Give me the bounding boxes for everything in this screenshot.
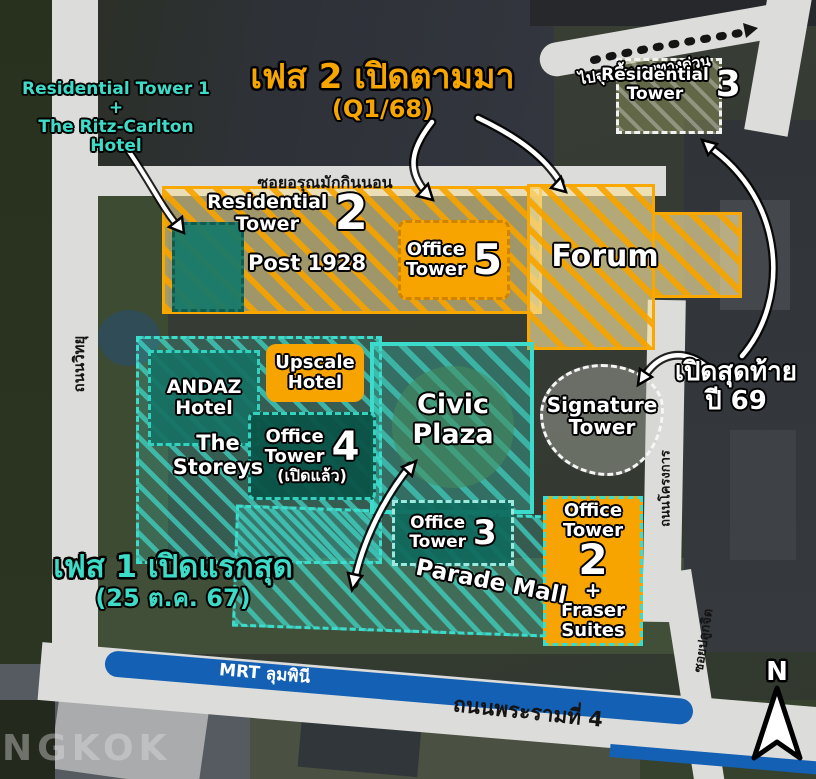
zone-forum-arm <box>652 212 742 298</box>
office2-label-2: Tower <box>563 521 623 541</box>
res3-label: Residential Tower 3 <box>616 66 726 104</box>
phase1-title: เฟส 1 เปิดแรกสุด <box>8 550 338 585</box>
phase2-heading: เฟส 2 เปิดตามมา (Q1/68) <box>230 58 535 123</box>
office3-label-2: Tower <box>409 533 466 552</box>
civic-label-1: Civic <box>388 390 518 420</box>
res1-note-line1: Residential Tower 1 <box>6 80 226 99</box>
upscale-hotel-box: Upscale Hotel <box>266 344 364 402</box>
civic-plaza-label: Civic Plaza <box>388 390 518 450</box>
office5-label-1: Office <box>407 240 465 260</box>
res1-note-line3: The Ritz-Carlton <box>6 118 226 137</box>
res3-label-2: Tower <box>627 85 684 104</box>
building-right-2 <box>730 430 796 560</box>
watermark: NGKOK <box>2 728 171 769</box>
res1-note-line2: + <box>6 99 226 118</box>
office4-number: 4 <box>332 429 360 465</box>
res3-label-1: Residential <box>601 66 709 85</box>
post1928-label: Post 1928 <box>232 252 382 276</box>
office2-label-4: Suites <box>561 621 625 641</box>
last-open-note: เปิดสุดท้าย ปี 69 <box>660 358 812 416</box>
office2-number: 2 <box>578 541 607 579</box>
phase1-heading: เฟส 1 เปิดแรกสุด (25 ต.ค. 67) <box>8 550 338 612</box>
res2-label-2: Tower <box>236 214 299 235</box>
road-label-soi-arun: ซอยอรุณมักกินนอน <box>200 171 450 196</box>
phase2-subtitle: (Q1/68) <box>230 96 535 123</box>
masterplan-map: Office Tower 5 ANDAZ Hotel Upscale Hotel… <box>0 0 816 779</box>
res1-note-line4: Hotel <box>6 137 226 156</box>
forum-label: Forum <box>545 240 665 274</box>
office5-number: 5 <box>473 241 502 279</box>
storeys-label-1: The <box>148 432 288 456</box>
civic-label-2: Plaza <box>388 420 518 450</box>
road-label-project: ถนนโครงการ <box>655 424 676 554</box>
res2-label: Residential Tower 2 <box>190 192 385 235</box>
road-label-witthayu: ถนนวิทยุ <box>67 279 91 449</box>
andaz-label-1: ANDAZ <box>167 377 242 398</box>
signature-label-2: Tower <box>540 416 664 438</box>
office2-label-1: Office <box>563 501 623 521</box>
storeys-label-2: Storeys <box>148 456 288 480</box>
office3-label-1: Office <box>410 514 465 533</box>
phase1-subtitle: (25 ต.ค. 67) <box>8 585 338 612</box>
office-tower-2-box: Office Tower 2 + Fraser Suites <box>543 496 643 646</box>
andaz-label-2: Hotel <box>167 398 242 419</box>
last-open-line2: ปี 69 <box>660 387 812 416</box>
compass-n-label: N <box>762 658 792 687</box>
res2-number: 2 <box>334 192 367 235</box>
office2-plus: + <box>585 579 602 601</box>
res3-number: 3 <box>716 69 741 101</box>
upscale-label-2: Hotel <box>275 373 354 393</box>
office5-label-2: Tower <box>406 260 466 280</box>
signature-tower-label: Signature Tower <box>540 394 664 439</box>
upscale-label-1: Upscale <box>275 353 354 373</box>
office-tower-5-box: Office Tower 5 <box>398 220 510 300</box>
last-open-line1: เปิดสุดท้าย <box>660 358 812 387</box>
res1-note: Residential Tower 1 + The Ritz-Carlton H… <box>6 80 226 156</box>
phase2-title: เฟส 2 เปิดตามมา <box>230 58 535 96</box>
signature-label-1: Signature <box>540 394 664 416</box>
storeys-label: The Storeys <box>148 432 288 479</box>
office3-number: 3 <box>473 518 497 549</box>
